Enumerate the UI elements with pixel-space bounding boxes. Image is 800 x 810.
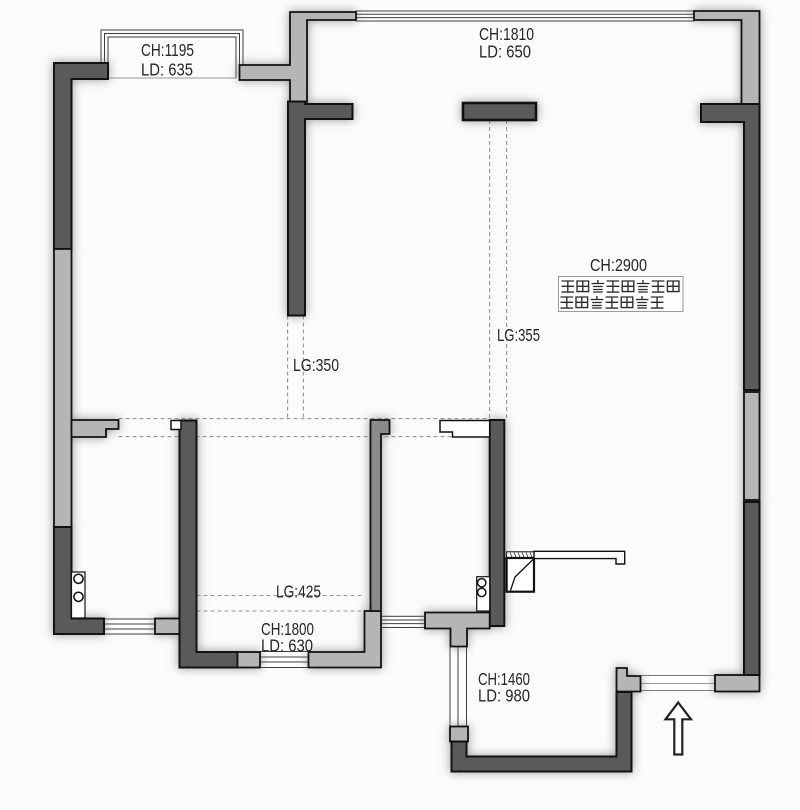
svg-text:LG:425: LG:425 (276, 582, 321, 602)
svg-text:LG:355: LG:355 (497, 325, 540, 345)
svg-text:CH:2900: CH:2900 (590, 255, 647, 275)
svg-text:LG:350: LG:350 (293, 355, 339, 375)
svg-text:LD: 650: LD: 650 (479, 42, 531, 62)
svg-text:LD: 630: LD: 630 (261, 636, 313, 656)
svg-text:CH:1195: CH:1195 (141, 40, 194, 60)
svg-text:LD: 635: LD: 635 (141, 60, 193, 80)
svg-text:LD: 980: LD: 980 (478, 686, 530, 706)
